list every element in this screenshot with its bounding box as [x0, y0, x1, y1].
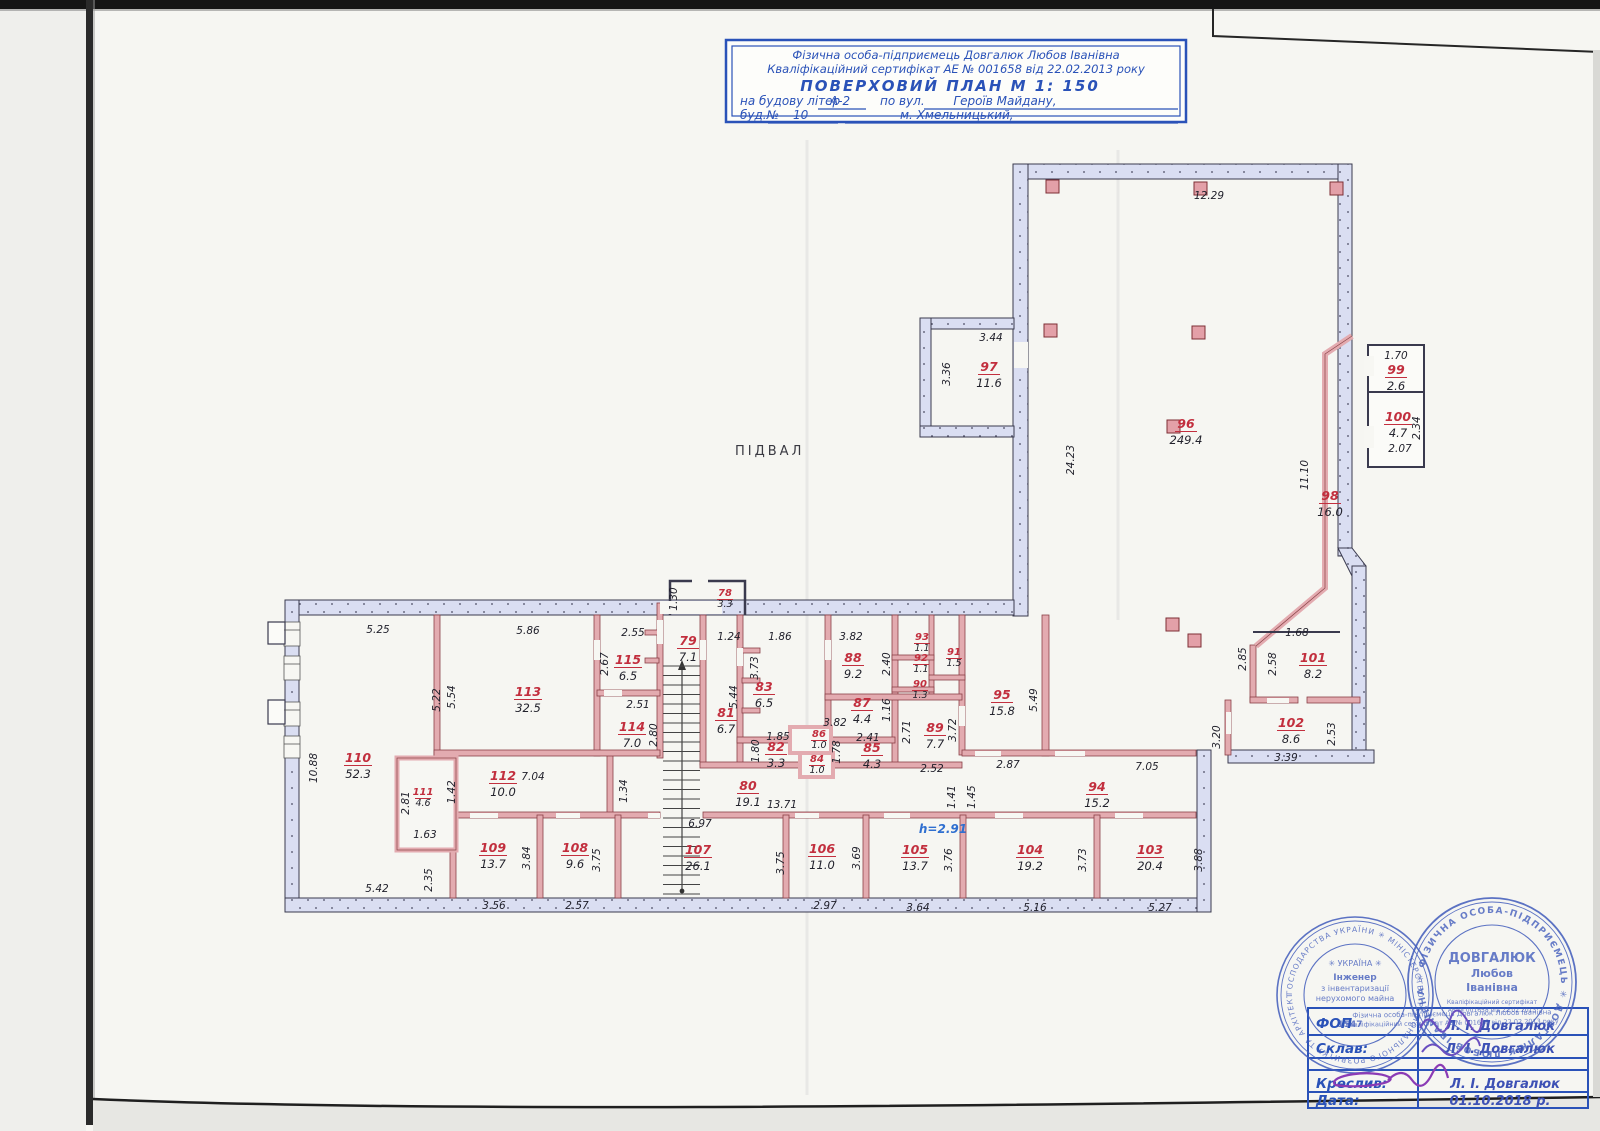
owner-line: Фізична особа-підприємець Довгалюк Любов…: [792, 48, 1119, 62]
dim-label: 24.23: [1065, 445, 1077, 475]
svg-text:7.1: 7.1: [679, 650, 697, 664]
dim-label: 1.78: [831, 740, 843, 764]
dim-label: 1.80: [750, 739, 762, 763]
svg-text:109: 109: [480, 840, 506, 855]
dim-label: 1.86: [768, 631, 792, 643]
dim-label: 1.45: [966, 785, 978, 809]
dim-label: 1.34: [618, 779, 630, 802]
dim-label: 1.24: [717, 631, 740, 643]
dim-label: 1.41: [946, 785, 958, 808]
room-label: 10513.7: [901, 842, 929, 873]
svg-text:15.2: 15.2: [1084, 796, 1110, 810]
svg-text:103: 103: [1137, 842, 1163, 857]
svg-text:111: 111: [413, 787, 434, 798]
svg-text:89: 89: [926, 720, 944, 735]
dim-label: 1.16: [881, 698, 893, 722]
svg-text:6.7: 6.7: [717, 722, 736, 736]
svg-text:ДОВГАЛЮК: ДОВГАЛЮК: [1448, 951, 1536, 966]
dim-label: 3.64: [906, 902, 929, 914]
svg-text:80: 80: [739, 778, 757, 793]
dim-label: 5.42: [365, 883, 389, 895]
dim-label: 2.97: [813, 900, 837, 912]
height-note: h=2.91: [919, 822, 967, 836]
dim-label: 3.72: [947, 718, 959, 742]
dim-label: 2.51: [626, 699, 649, 711]
building-litera: А-2: [829, 94, 850, 108]
room-label: 10611.0: [808, 841, 836, 872]
svg-text:3.3: 3.3: [767, 756, 785, 770]
dim-label: 3.56: [482, 900, 506, 912]
room-label: 931.1: [914, 632, 930, 654]
dim-label: 1.85: [766, 731, 790, 743]
svg-text:4.3: 4.3: [863, 757, 881, 771]
dim-label: 2.58: [1267, 652, 1279, 676]
city-name: м. Хмельницький,: [900, 108, 1014, 122]
dim-label: 3.84: [521, 846, 533, 869]
row-data-label: Дата:: [1315, 1093, 1359, 1109]
room-label: 11210.0: [489, 768, 517, 799]
scanned-sheet: Фізична особа-підприємець Довгалюк Любов…: [0, 0, 1600, 1131]
svg-text:2.6: 2.6: [1387, 379, 1405, 393]
svg-text:52.3: 52.3: [345, 767, 371, 781]
svg-text:105: 105: [902, 842, 928, 857]
svg-text:15.8: 15.8: [989, 704, 1015, 718]
svg-text:107: 107: [685, 842, 711, 857]
floor-label: ПІДВАЛ: [735, 444, 804, 459]
dim-label: 3.75: [591, 848, 603, 872]
dim-label: 6.97: [688, 818, 712, 830]
room-label: 10320.4: [1136, 842, 1164, 873]
svg-text:13.7: 13.7: [480, 857, 506, 871]
dim-label: 12.29: [1194, 190, 1224, 202]
svg-text:86: 86: [812, 729, 826, 740]
room-label: 897.7: [924, 720, 946, 751]
svg-text:26.1: 26.1: [685, 859, 711, 873]
dim-label: 2.67: [599, 652, 611, 676]
dim-label: 2.87: [996, 759, 1020, 771]
svg-text:96: 96: [1177, 416, 1195, 431]
svg-text:9.6: 9.6: [566, 857, 584, 871]
svg-text:97: 97: [980, 359, 998, 374]
dim-label: 5.22: [431, 688, 443, 712]
svg-text:19.2: 19.2: [1017, 859, 1043, 873]
dim-label: 11.10: [1299, 460, 1311, 490]
dim-label: 2.81: [400, 791, 412, 814]
dim-label: 2.57: [565, 900, 589, 912]
dim-label: 7.04: [521, 771, 544, 783]
svg-text:1.1: 1.1: [913, 664, 928, 675]
dim-label: 10.88: [308, 753, 320, 783]
dim-label: 1.30: [668, 587, 680, 611]
svg-text:1.0: 1.0: [811, 740, 826, 751]
dim-label: 1.70: [1384, 350, 1408, 362]
svg-text:91: 91: [947, 647, 961, 658]
dim-label: 3.75: [775, 851, 787, 875]
row-kresliv-value: Л. І. Довгалюк: [1449, 1077, 1561, 1092]
svg-text:3.3: 3.3: [717, 599, 732, 610]
dim-label: 3.88: [1193, 848, 1205, 872]
svg-text:9.2: 9.2: [844, 667, 862, 681]
svg-text:7.7: 7.7: [926, 737, 945, 751]
dim-label: 1.68: [1285, 627, 1309, 639]
dim-label: 3.44: [979, 332, 1002, 344]
svg-text:нерухомого майна: нерухомого майна: [1316, 994, 1395, 1003]
room-label: 10913.7: [479, 840, 507, 871]
dim-label: 13.71: [767, 799, 797, 811]
stamp-ukraina: ✳ УКРАЇНА ✳: [1328, 958, 1381, 968]
svg-text:8.6: 8.6: [1282, 732, 1300, 746]
svg-text:1.1: 1.1: [914, 643, 929, 654]
svg-text:93: 93: [915, 632, 929, 643]
dim-label: 3.20: [1211, 725, 1223, 749]
svg-text:110: 110: [345, 750, 371, 765]
svg-text:13.7: 13.7: [902, 859, 928, 873]
room-label: 783.3: [717, 588, 733, 610]
room-label: 11052.3: [344, 750, 372, 781]
dim-label: 2.07: [1388, 443, 1412, 455]
row-data-value: 01.10.2018 р.: [1449, 1094, 1550, 1109]
room-label: 836.5: [753, 679, 775, 710]
room-label: 11332.5: [514, 684, 542, 715]
svg-text:102: 102: [1278, 715, 1304, 730]
floor-plan-drawing: Фізична особа-підприємець Довгалюк Любов…: [0, 0, 1600, 1131]
svg-text:104: 104: [1017, 842, 1043, 857]
dim-label: 5.86: [516, 625, 540, 637]
dim-label: 5.16: [1023, 902, 1047, 914]
dim-label: 2.85: [1237, 647, 1249, 671]
dim-label: 2.35: [423, 868, 435, 892]
svg-text:106: 106: [809, 841, 835, 856]
house-number: 10: [793, 108, 809, 122]
svg-text:16.0: 16.0: [1317, 505, 1343, 519]
svg-text:4.7: 4.7: [1389, 426, 1408, 440]
room-label: 797.1: [677, 633, 699, 664]
building-prefix: на будову літер: [740, 94, 841, 108]
svg-text:1.5: 1.5: [946, 658, 961, 669]
svg-text:100: 100: [1385, 409, 1411, 424]
room-label: 854.3: [861, 740, 883, 771]
svg-text:Любов: Любов: [1471, 967, 1513, 980]
dim-label: 3.82: [823, 717, 847, 729]
dim-label: 2.53: [1326, 722, 1338, 745]
room-label: 992.6: [1385, 362, 1407, 393]
svg-text:95: 95: [993, 687, 1011, 702]
svg-text:8.2: 8.2: [1304, 667, 1322, 681]
svg-text:7.0: 7.0: [623, 736, 641, 750]
svg-text:113: 113: [515, 684, 541, 699]
room-label: 1114.6: [413, 787, 434, 809]
svg-text:Іванівна: Іванівна: [1466, 981, 1518, 994]
title-block: Фізична особа-підприємець Довгалюк Любов…: [726, 40, 1186, 123]
svg-text:10.0: 10.0: [490, 785, 516, 799]
dim-label: 7.05: [1135, 761, 1159, 773]
svg-text:Інженер: Інженер: [1333, 973, 1377, 983]
dim-label: 2.34: [1411, 416, 1423, 439]
room-label: 889.2: [842, 650, 864, 681]
dim-label: 2.80: [648, 723, 660, 747]
svg-text:1.0: 1.0: [809, 765, 824, 776]
svg-text:11.0: 11.0: [809, 858, 835, 872]
room-label: 921.1: [913, 653, 929, 675]
svg-text:90: 90: [913, 679, 927, 690]
room-label: 901.3: [912, 679, 928, 701]
svg-text:6.5: 6.5: [755, 696, 773, 710]
dim-label: 2.52: [920, 763, 944, 775]
svg-text:83: 83: [755, 679, 772, 694]
dim-label: 2.40: [881, 652, 893, 676]
room-label: 861.0: [811, 729, 827, 751]
dim-label: 3.73: [749, 656, 761, 679]
dim-label: 3.76: [943, 848, 955, 872]
street-name: Героїв Майдану,: [953, 94, 1056, 108]
dim-label: 5.49: [1028, 688, 1040, 712]
svg-text:99: 99: [1387, 362, 1405, 377]
svg-text:79: 79: [679, 633, 697, 648]
svg-text:19.1: 19.1: [735, 795, 761, 809]
svg-text:88: 88: [844, 650, 862, 665]
svg-text:11.6: 11.6: [976, 376, 1002, 390]
dim-label: 3.73: [1077, 848, 1089, 871]
svg-text:84: 84: [810, 754, 824, 765]
room-label: 874.4: [851, 695, 873, 726]
svg-text:92: 92: [914, 653, 928, 664]
svg-text:112: 112: [490, 768, 516, 783]
dim-label: 5.25: [366, 624, 390, 636]
dim-label: 5.44: [728, 685, 740, 708]
svg-text:4.4: 4.4: [853, 712, 871, 726]
dim-label: 2.71: [901, 720, 913, 743]
room-label: 823.3: [765, 739, 787, 770]
room-label: 841.0: [809, 754, 825, 776]
svg-text:20.4: 20.4: [1137, 859, 1163, 873]
street-prefix: по вул.: [880, 94, 925, 108]
svg-text:101: 101: [1300, 650, 1326, 665]
room-label: 911.5: [946, 647, 962, 669]
dim-label: 3.82: [839, 631, 863, 643]
room-label: 10726.1: [684, 842, 712, 873]
svg-text:1.3: 1.3: [912, 690, 927, 701]
plan-title: ПОВЕРХОВИЙ ПЛАН М 1: 150: [800, 76, 1100, 95]
svg-text:108: 108: [562, 840, 588, 855]
dim-label: 3.36: [941, 362, 953, 386]
dim-label: 1.42: [446, 780, 458, 804]
certificate-line: Кваліфікаційний сертифікат АЕ № 001658 в…: [767, 62, 1145, 76]
svg-text:87: 87: [853, 695, 871, 710]
room-label: 10419.2: [1016, 842, 1044, 873]
dim-label: 2.41: [856, 732, 879, 744]
dim-label: 3.69: [851, 846, 863, 870]
svg-text:98: 98: [1321, 488, 1339, 503]
svg-text:32.5: 32.5: [515, 701, 541, 715]
svg-text:115: 115: [615, 652, 641, 667]
dim-label: 3.39: [1274, 752, 1298, 764]
dim-label: 5.54: [446, 685, 458, 708]
svg-text:4.6: 4.6: [415, 798, 430, 809]
dim-label: 1.63: [413, 829, 436, 841]
dim-label: 5.27: [1148, 902, 1172, 914]
svg-text:249.4: 249.4: [1170, 433, 1203, 447]
svg-text:6.5: 6.5: [619, 669, 637, 683]
svg-text:78: 78: [718, 588, 732, 599]
svg-text:з інвентаризації: з інвентаризації: [1321, 984, 1390, 993]
svg-text:Кваліфікаційний сертифікат: Кваліфікаційний сертифікат: [1447, 999, 1538, 1006]
svg-text:114: 114: [619, 719, 645, 734]
svg-text:94: 94: [1088, 779, 1105, 794]
house-prefix: буд.№: [740, 108, 779, 122]
dim-label: 2.55: [621, 627, 645, 639]
